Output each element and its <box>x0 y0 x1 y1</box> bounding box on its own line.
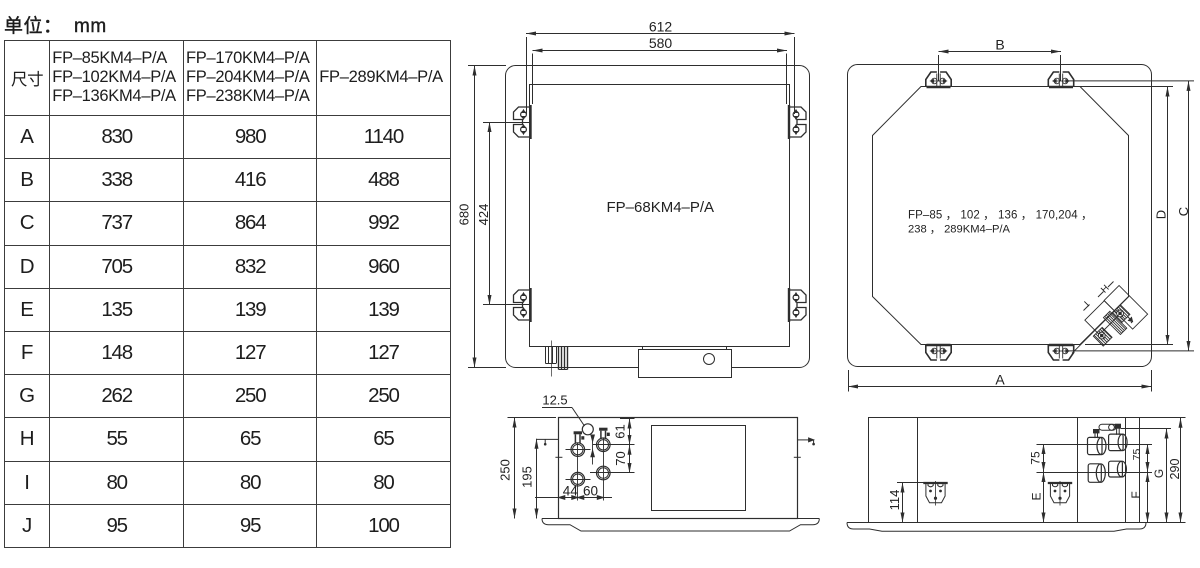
svg-text:G: G <box>1152 469 1166 478</box>
svg-text:A: A <box>995 372 1005 388</box>
svg-text:195: 195 <box>520 466 535 488</box>
svg-text:FP–68KM4–P/A: FP–68KM4–P/A <box>607 199 715 216</box>
svg-text:238 ， 289KM4–P/A: 238 ， 289KM4–P/A <box>908 224 1011 236</box>
svg-text:75: 75 <box>1131 449 1143 461</box>
svg-text:75: 75 <box>1029 451 1043 465</box>
svg-text:12.5: 12.5 <box>542 393 567 408</box>
svg-text:F: F <box>1129 491 1143 498</box>
svg-text:290: 290 <box>1168 459 1182 480</box>
svg-text:FP–85 ， 102 ， 136 ， 170,204 ，: FP–85 ， 102 ， 136 ， 170,204 ， <box>908 210 1093 222</box>
svg-text:580: 580 <box>649 35 673 51</box>
svg-text:44: 44 <box>563 484 579 499</box>
svg-text:250: 250 <box>498 459 513 481</box>
svg-text:B: B <box>995 37 1004 53</box>
svg-text:C: C <box>1176 207 1191 216</box>
svg-text:61: 61 <box>613 424 628 438</box>
svg-text:612: 612 <box>649 19 673 35</box>
svg-text:424: 424 <box>476 204 491 226</box>
svg-text:70: 70 <box>613 451 628 465</box>
svg-text:I: I <box>1082 299 1092 309</box>
svg-text:60: 60 <box>583 484 598 499</box>
svg-text:D: D <box>1154 210 1169 219</box>
svg-text:E: E <box>1030 492 1044 500</box>
svg-text:114: 114 <box>887 490 902 511</box>
svg-text:680: 680 <box>457 204 472 226</box>
